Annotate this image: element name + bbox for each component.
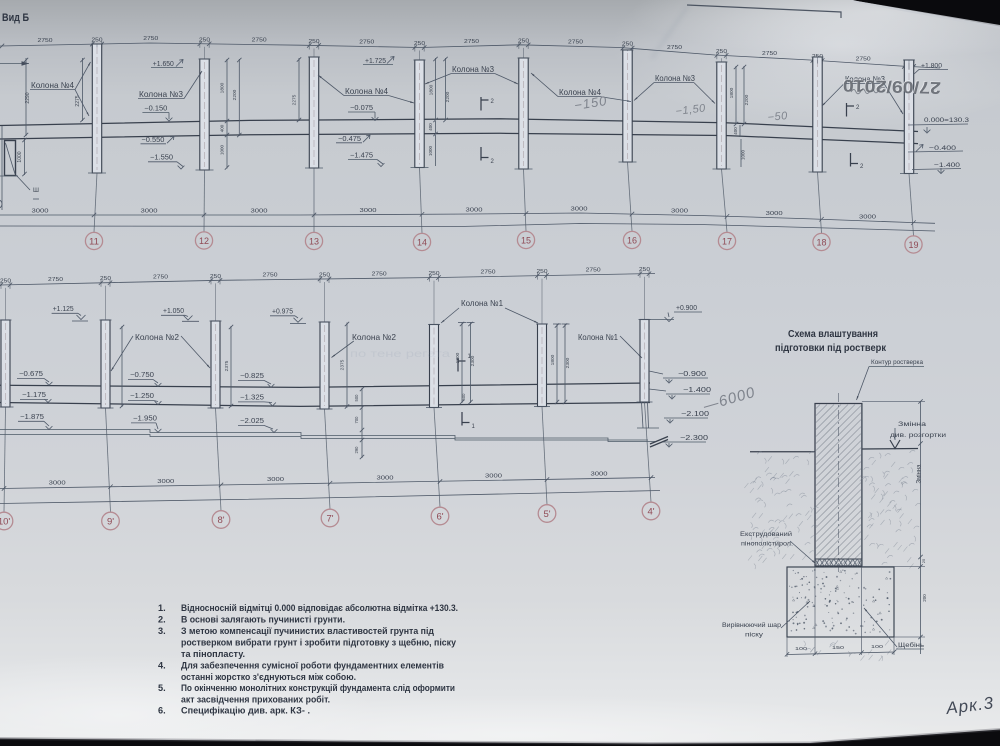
svg-text:Вид Б: Вид Б bbox=[2, 12, 29, 24]
svg-text:Ш: Ш bbox=[33, 187, 39, 194]
svg-text:+1.050: +1.050 bbox=[163, 308, 184, 315]
svg-text:+1.725: +1.725 bbox=[365, 58, 386, 65]
svg-text:700: 700 bbox=[354, 416, 359, 424]
svg-text:та пінопласту.: та пінопласту. bbox=[181, 649, 245, 659]
svg-text:250: 250 bbox=[319, 273, 330, 279]
svg-text:14: 14 bbox=[417, 237, 427, 248]
svg-text:1800: 1800 bbox=[220, 82, 226, 93]
svg-text:3000: 3000 bbox=[267, 477, 284, 483]
svg-text:3000: 3000 bbox=[141, 209, 158, 215]
svg-text:по тене регата: по тене регата bbox=[350, 349, 451, 360]
svg-text:2750: 2750 bbox=[568, 39, 583, 45]
svg-text:Вирівнюючий шар: Вирівнюючий шар bbox=[722, 621, 781, 629]
svg-text:Колона №3: Колона №3 bbox=[655, 73, 695, 83]
svg-text:400: 400 bbox=[220, 124, 225, 132]
svg-text:8': 8' bbox=[217, 515, 224, 526]
svg-text:1000: 1000 bbox=[741, 149, 746, 160]
svg-text:−0.550: −0.550 bbox=[141, 137, 164, 144]
svg-text:−0.150: −0.150 bbox=[144, 106, 167, 113]
svg-text:17: 17 bbox=[722, 236, 732, 247]
svg-text:250: 250 bbox=[518, 38, 529, 44]
svg-text:−1.400: −1.400 bbox=[683, 387, 711, 394]
svg-text:0.000=130.3: 0.000=130.3 bbox=[924, 117, 970, 124]
svg-text:−2.025: −2.025 bbox=[240, 418, 264, 425]
svg-text:Відносносній відмітці 0.000 ві: Відносносній відмітці 0.000 відповідає а… bbox=[181, 603, 458, 613]
svg-text:100: 100 bbox=[795, 646, 807, 652]
svg-text:19: 19 bbox=[909, 240, 919, 251]
svg-text:250: 250 bbox=[100, 276, 111, 282]
svg-text:2750: 2750 bbox=[263, 273, 278, 279]
svg-text:10': 10' bbox=[0, 516, 10, 527]
svg-text:Колона №3: Колона №3 bbox=[139, 89, 183, 99]
svg-text:Колона №4: Колона №4 bbox=[31, 80, 74, 90]
svg-text:4': 4' bbox=[647, 506, 654, 517]
svg-text:підготовки під ростверк: підготовки під ростверк bbox=[775, 343, 886, 354]
svg-text:1800: 1800 bbox=[455, 352, 461, 363]
svg-text:2750: 2750 bbox=[481, 270, 496, 276]
svg-text:3000: 3000 bbox=[32, 209, 49, 215]
svg-text:−50: −50 bbox=[767, 110, 789, 124]
svg-text:400: 400 bbox=[428, 123, 433, 131]
svg-text:3000: 3000 bbox=[377, 475, 394, 481]
svg-text:−0.675: −0.675 bbox=[19, 371, 43, 378]
svg-text:Контур ростверка: Контур ростверка bbox=[871, 359, 923, 366]
svg-text:+0.975: +0.975 bbox=[272, 309, 293, 316]
svg-text:Колона №1: Колона №1 bbox=[578, 332, 618, 342]
svg-text:250: 250 bbox=[414, 41, 425, 47]
svg-text:+0.900: +0.900 bbox=[676, 305, 697, 312]
svg-text:250: 250 bbox=[309, 39, 320, 45]
svg-text:піску: піску bbox=[745, 631, 764, 639]
svg-text:2750: 2750 bbox=[667, 45, 682, 51]
svg-text:2375: 2375 bbox=[224, 360, 230, 371]
svg-text:3000: 3000 bbox=[571, 207, 588, 213]
svg-text:−1.400: −1.400 bbox=[934, 162, 960, 169]
svg-text:В основі залягають пучинисті г: В основі залягають пучинисті грунти. bbox=[181, 615, 345, 625]
svg-text:+1.125: +1.125 bbox=[53, 306, 74, 313]
svg-text:4.: 4. bbox=[158, 661, 166, 671]
svg-text:2375: 2375 bbox=[340, 359, 346, 370]
svg-text:3000: 3000 bbox=[360, 208, 377, 214]
svg-text:3000: 3000 bbox=[671, 209, 688, 215]
svg-text:1.: 1. bbox=[158, 603, 166, 613]
svg-text:2750: 2750 bbox=[143, 36, 158, 42]
svg-text:100: 100 bbox=[871, 644, 883, 650]
svg-text:+1.800: +1.800 bbox=[921, 63, 942, 70]
svg-text:Колона №1: Колона №1 bbox=[461, 298, 503, 308]
svg-text:див. розгортки: див. розгортки bbox=[890, 432, 946, 439]
svg-text:1000: 1000 bbox=[220, 144, 225, 155]
svg-text:1800: 1800 bbox=[550, 354, 556, 365]
svg-text:3000: 3000 bbox=[766, 211, 783, 217]
svg-text:500: 500 bbox=[354, 394, 359, 402]
svg-text:2750: 2750 bbox=[372, 271, 387, 277]
svg-text:1800: 1800 bbox=[729, 87, 735, 98]
svg-text:Змінна: Змінна bbox=[917, 464, 923, 484]
svg-text:250: 250 bbox=[716, 49, 727, 55]
svg-text:2200: 2200 bbox=[744, 94, 750, 105]
svg-text:2275: 2275 bbox=[75, 95, 81, 106]
svg-text:250: 250 bbox=[199, 37, 210, 43]
svg-text:18: 18 bbox=[817, 237, 827, 248]
svg-text:1800: 1800 bbox=[429, 84, 435, 95]
svg-text:9': 9' bbox=[107, 516, 114, 527]
svg-text:Колона №2: Колона №2 bbox=[352, 332, 396, 342]
svg-text:5.: 5. bbox=[158, 683, 166, 693]
svg-text:6.: 6. bbox=[158, 706, 166, 716]
svg-text:Щебінь: Щебінь bbox=[898, 641, 925, 649]
svg-text:−0.750: −0.750 bbox=[130, 372, 154, 379]
svg-text:290: 290 bbox=[354, 446, 359, 454]
svg-text:−1.950: −1.950 bbox=[133, 416, 157, 423]
svg-text:2290: 2290 bbox=[25, 92, 31, 103]
svg-text:2750: 2750 bbox=[856, 57, 871, 63]
svg-text:250: 250 bbox=[639, 267, 650, 273]
svg-text:−1.175: −1.175 bbox=[22, 392, 46, 399]
svg-text:2200: 2200 bbox=[445, 91, 451, 102]
svg-text:250: 250 bbox=[429, 271, 440, 277]
svg-text:пінополістирол: пінополістирол bbox=[741, 540, 791, 548]
svg-text:250: 250 bbox=[0, 278, 11, 284]
svg-text:2750: 2750 bbox=[153, 275, 168, 281]
svg-text:−1.875: −1.875 bbox=[20, 414, 44, 421]
svg-text:13: 13 bbox=[309, 236, 319, 247]
svg-text:2300: 2300 bbox=[565, 357, 571, 368]
svg-text:1000: 1000 bbox=[17, 151, 23, 162]
svg-text:2.: 2. bbox=[158, 615, 166, 625]
svg-text:−1.250: −1.250 bbox=[130, 393, 154, 400]
svg-text:150: 150 bbox=[832, 645, 844, 651]
svg-text:12: 12 bbox=[199, 236, 209, 247]
svg-text:Колона №2: Колона №2 bbox=[135, 332, 179, 342]
svg-text:250: 250 bbox=[622, 42, 633, 48]
svg-text:По окінченню монолітних констр: По окінченню монолітних конструкцій фунд… bbox=[181, 683, 455, 693]
svg-text:Колона №3: Колона №3 bbox=[452, 64, 494, 74]
svg-text:−0.900: −0.900 bbox=[678, 371, 706, 378]
svg-text:2750: 2750 bbox=[252, 38, 267, 44]
svg-text:2750: 2750 bbox=[359, 40, 374, 46]
svg-text:Змінна: Змінна bbox=[898, 420, 926, 428]
svg-text:27/09/2010: 27/09/2010 bbox=[843, 76, 941, 98]
svg-text:7': 7' bbox=[326, 513, 333, 524]
svg-text:11: 11 bbox=[89, 236, 99, 247]
svg-text:2275: 2275 bbox=[292, 94, 298, 105]
svg-text:3000: 3000 bbox=[591, 472, 608, 478]
svg-text:5': 5' bbox=[543, 509, 550, 520]
svg-text:З метою компенсації пучинистих: З метою компенсації пучинистих властивос… bbox=[181, 626, 434, 636]
svg-text:Екструдований: Екструдований bbox=[740, 530, 792, 538]
svg-text:3.: 3. bbox=[158, 626, 166, 636]
svg-text:2750: 2750 bbox=[762, 51, 777, 57]
svg-text:+1.650: +1.650 bbox=[153, 61, 174, 68]
svg-text:3000: 3000 bbox=[466, 208, 483, 214]
svg-text:3000: 3000 bbox=[485, 474, 502, 480]
svg-text:−1.550: −1.550 bbox=[150, 155, 173, 162]
svg-text:250: 250 bbox=[210, 274, 221, 280]
svg-text:Схема влаштування: Схема влаштування bbox=[788, 329, 878, 340]
svg-text:−0.825: −0.825 bbox=[240, 373, 264, 380]
svg-text:−0.075: −0.075 bbox=[350, 105, 373, 112]
svg-text:−0.475: −0.475 bbox=[338, 136, 361, 143]
svg-text:Специфікацію див. арк. КЗ-: Специфікацію див. арк. КЗ- . bbox=[181, 706, 310, 716]
svg-text:3000: 3000 bbox=[251, 209, 268, 215]
svg-text:акт засвідчення прихованих роб: акт засвідчення прихованих робіт. bbox=[181, 695, 330, 705]
svg-text:1000: 1000 bbox=[428, 145, 433, 156]
svg-text:−1.475: −1.475 bbox=[350, 153, 373, 160]
svg-text:Для забезпечення сумісної робо: Для забезпечення сумісної роботи фундаме… bbox=[181, 661, 444, 671]
svg-text:3000: 3000 bbox=[49, 481, 66, 487]
svg-text:400: 400 bbox=[733, 127, 738, 135]
svg-text:2300: 2300 bbox=[470, 355, 476, 366]
svg-text:15: 15 bbox=[521, 235, 531, 246]
svg-text:6': 6' bbox=[436, 511, 443, 522]
svg-text:Колона №4: Колона №4 bbox=[345, 86, 388, 96]
svg-text:останні жорстко з'єднуються мі: останні жорстко з'єднуються між собою. bbox=[181, 672, 356, 682]
svg-text:25: 25 bbox=[921, 558, 926, 563]
svg-text:3000: 3000 bbox=[859, 215, 876, 221]
svg-text:250: 250 bbox=[537, 269, 548, 275]
svg-text:2750: 2750 bbox=[464, 39, 479, 45]
svg-text:−2.300: −2.300 bbox=[680, 435, 708, 442]
svg-text:16: 16 bbox=[627, 235, 637, 246]
svg-text:2750: 2750 bbox=[586, 268, 601, 274]
svg-text:2750: 2750 bbox=[48, 277, 63, 283]
svg-text:ростверком вибрати грунт і зро: ростверком вибрати грунт і зробити підго… bbox=[181, 638, 457, 648]
svg-text:3000: 3000 bbox=[157, 479, 174, 485]
svg-text:2200: 2200 bbox=[232, 89, 238, 100]
svg-text:250: 250 bbox=[92, 38, 103, 44]
svg-text:200: 200 bbox=[922, 594, 927, 602]
svg-text:−1.325: −1.325 bbox=[240, 395, 264, 402]
svg-text:500: 500 bbox=[461, 393, 466, 401]
svg-text:2750: 2750 bbox=[38, 38, 53, 44]
